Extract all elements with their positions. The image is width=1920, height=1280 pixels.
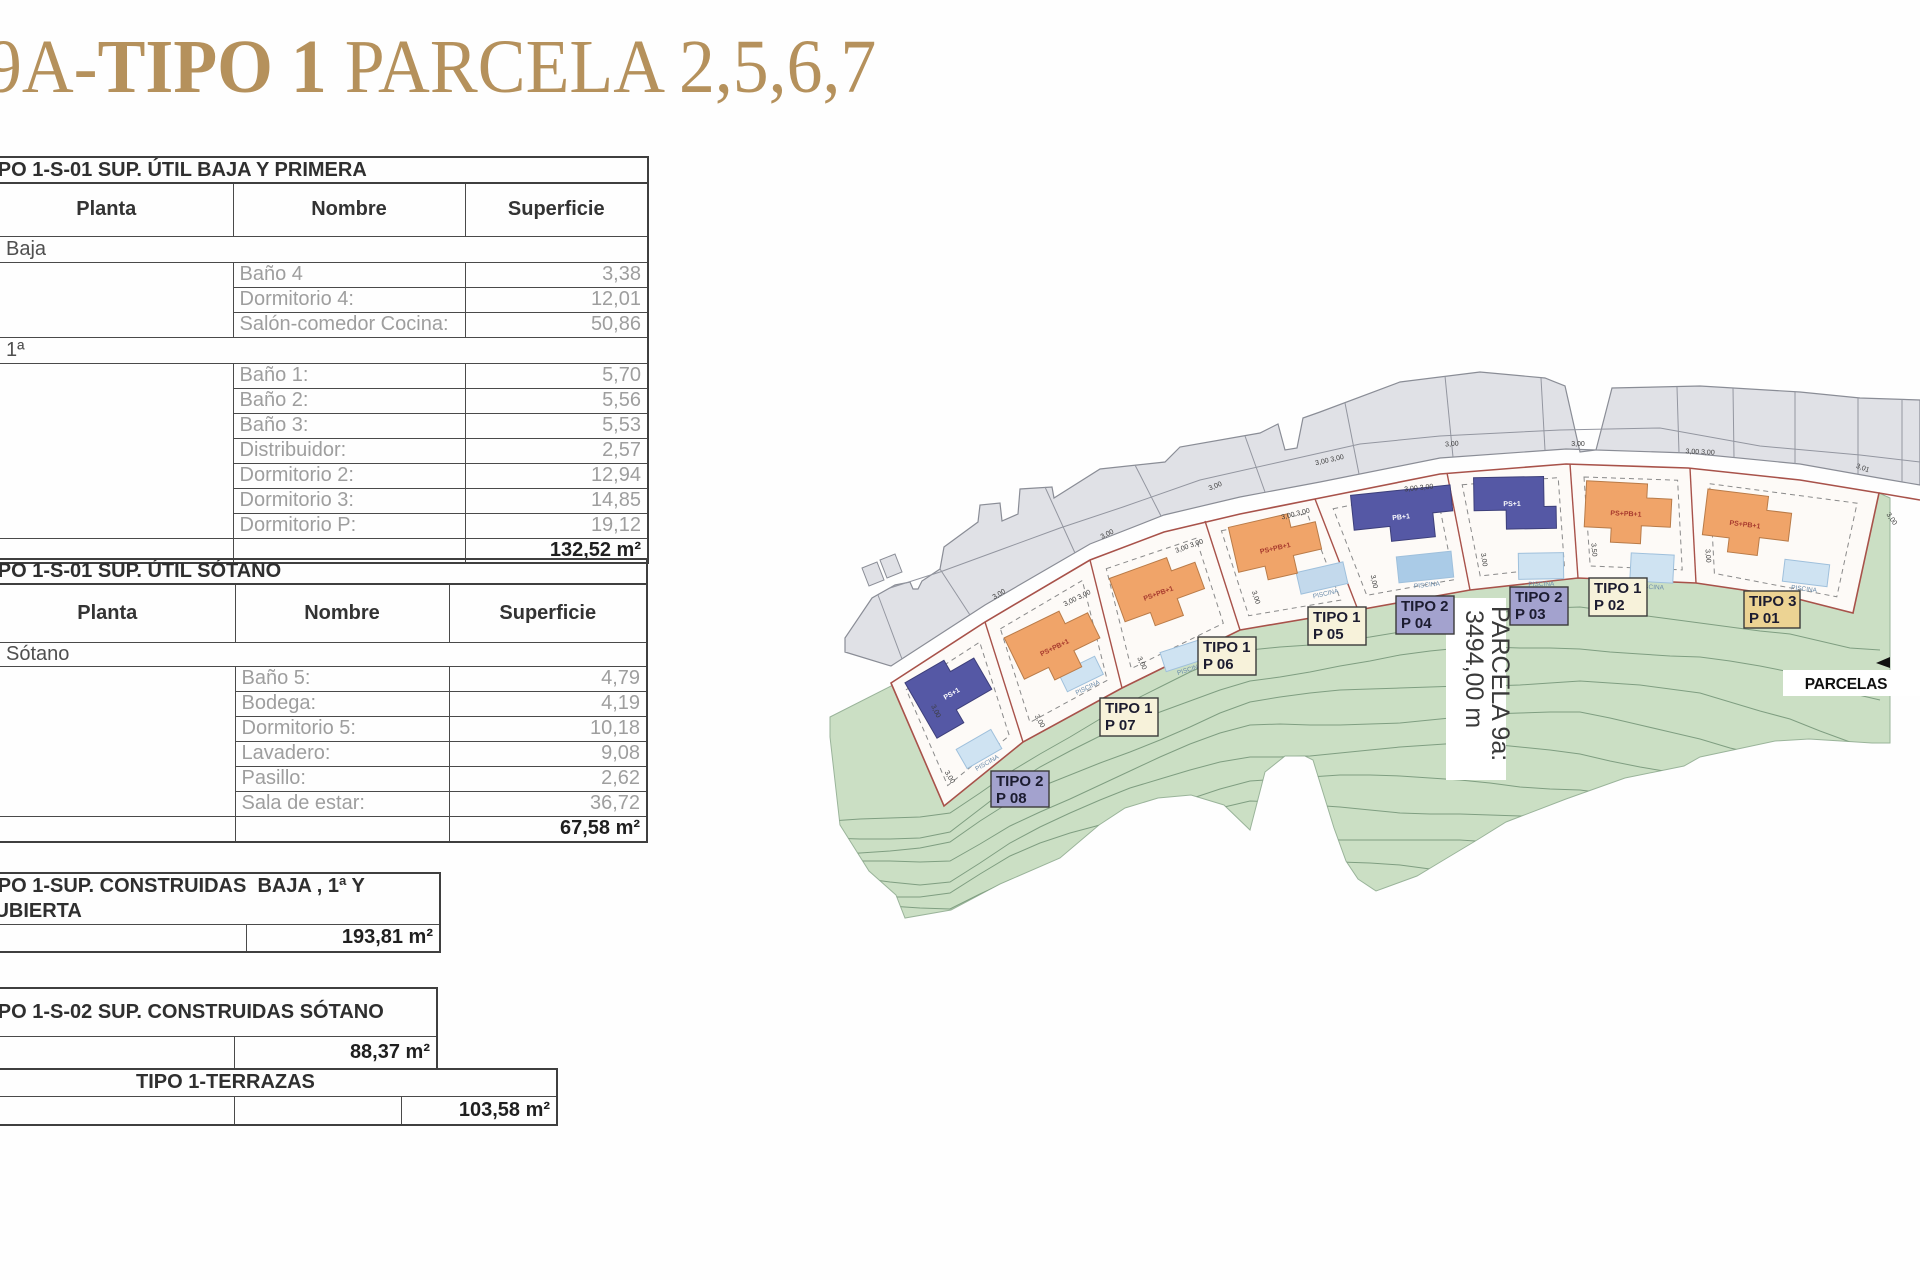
svg-text:3,50: 3,50 <box>1589 543 1597 557</box>
svg-text:TIPO 2: TIPO 2 <box>1401 598 1449 615</box>
svg-text:3,00: 3,00 <box>1571 441 1585 448</box>
svg-text:P 08: P 08 <box>996 790 1027 807</box>
svg-text:3,00 3,00: 3,00 3,00 <box>1685 448 1715 457</box>
svg-text:P 01: P 01 <box>1749 610 1780 627</box>
svg-text:PARCELAS: PARCELAS <box>1805 676 1888 693</box>
svg-text:TIPO 1: TIPO 1 <box>1105 700 1153 717</box>
svg-text:3,00: 3,00 <box>1704 549 1712 563</box>
svg-text:TIPO 2: TIPO 2 <box>1515 589 1563 606</box>
svg-text:P 03: P 03 <box>1515 606 1546 623</box>
svg-text:TIPO 1: TIPO 1 <box>1203 639 1251 656</box>
svg-text:P 07: P 07 <box>1105 717 1136 734</box>
svg-text:PARCELA 9a:: PARCELA 9a: <box>1486 606 1514 761</box>
svg-text:P 06: P 06 <box>1203 656 1234 673</box>
svg-text:TIPO 2: TIPO 2 <box>996 773 1044 790</box>
svg-text:TIPO 1: TIPO 1 <box>1313 609 1361 626</box>
svg-text:3,00: 3,00 <box>1445 441 1459 449</box>
svg-text:TIPO 3: TIPO 3 <box>1749 593 1797 610</box>
svg-text:PS+1: PS+1 <box>1503 501 1521 508</box>
svg-text:3494,00 m: 3494,00 m <box>1460 610 1488 728</box>
svg-text:P 04: P 04 <box>1401 615 1432 632</box>
svg-text:P 02: P 02 <box>1594 597 1625 614</box>
svg-text:TIPO 1: TIPO 1 <box>1594 580 1642 597</box>
svg-text:P 05: P 05 <box>1313 626 1344 643</box>
